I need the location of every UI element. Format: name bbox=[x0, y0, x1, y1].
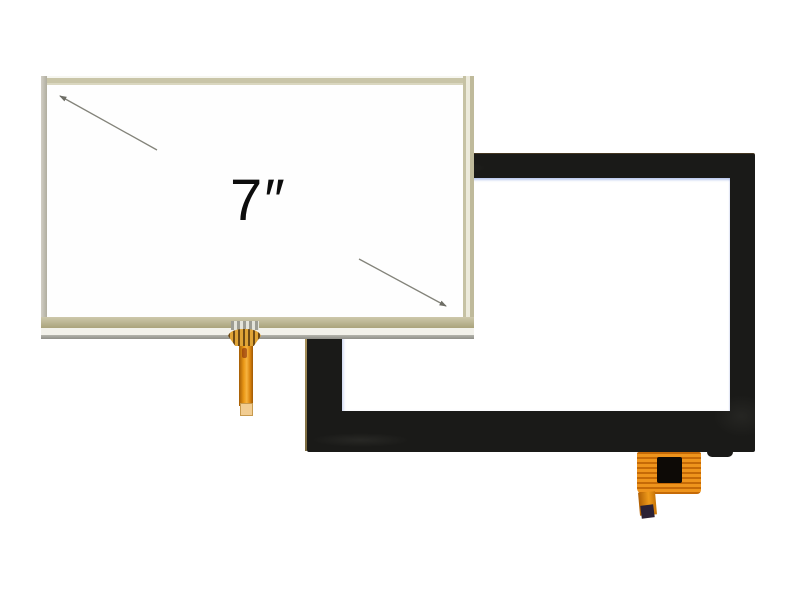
product-photo-canvas: 7″ bbox=[0, 0, 800, 600]
resistive-touch-panel: 7″ bbox=[41, 76, 474, 339]
capacitive-fpc-connector-tip bbox=[640, 504, 654, 518]
resistive-panel-left-edge bbox=[41, 76, 47, 339]
resistive-panel-top-edge bbox=[41, 76, 474, 85]
resistive-panel-right-edge bbox=[463, 76, 474, 339]
screen-size-label: 7″ bbox=[230, 172, 287, 230]
resistive-fpc-crimp-tabs bbox=[231, 321, 259, 330]
resistive-fpc-cable bbox=[239, 344, 253, 406]
capacitive-fpc-controller-chip bbox=[657, 457, 682, 483]
capacitive-panel-edge-tab bbox=[707, 451, 733, 457]
resistive-fpc-crimp-connector bbox=[228, 329, 261, 346]
capacitive-panel-edge-highlight bbox=[305, 337, 307, 451]
resistive-fpc-connector-tip bbox=[240, 403, 253, 416]
